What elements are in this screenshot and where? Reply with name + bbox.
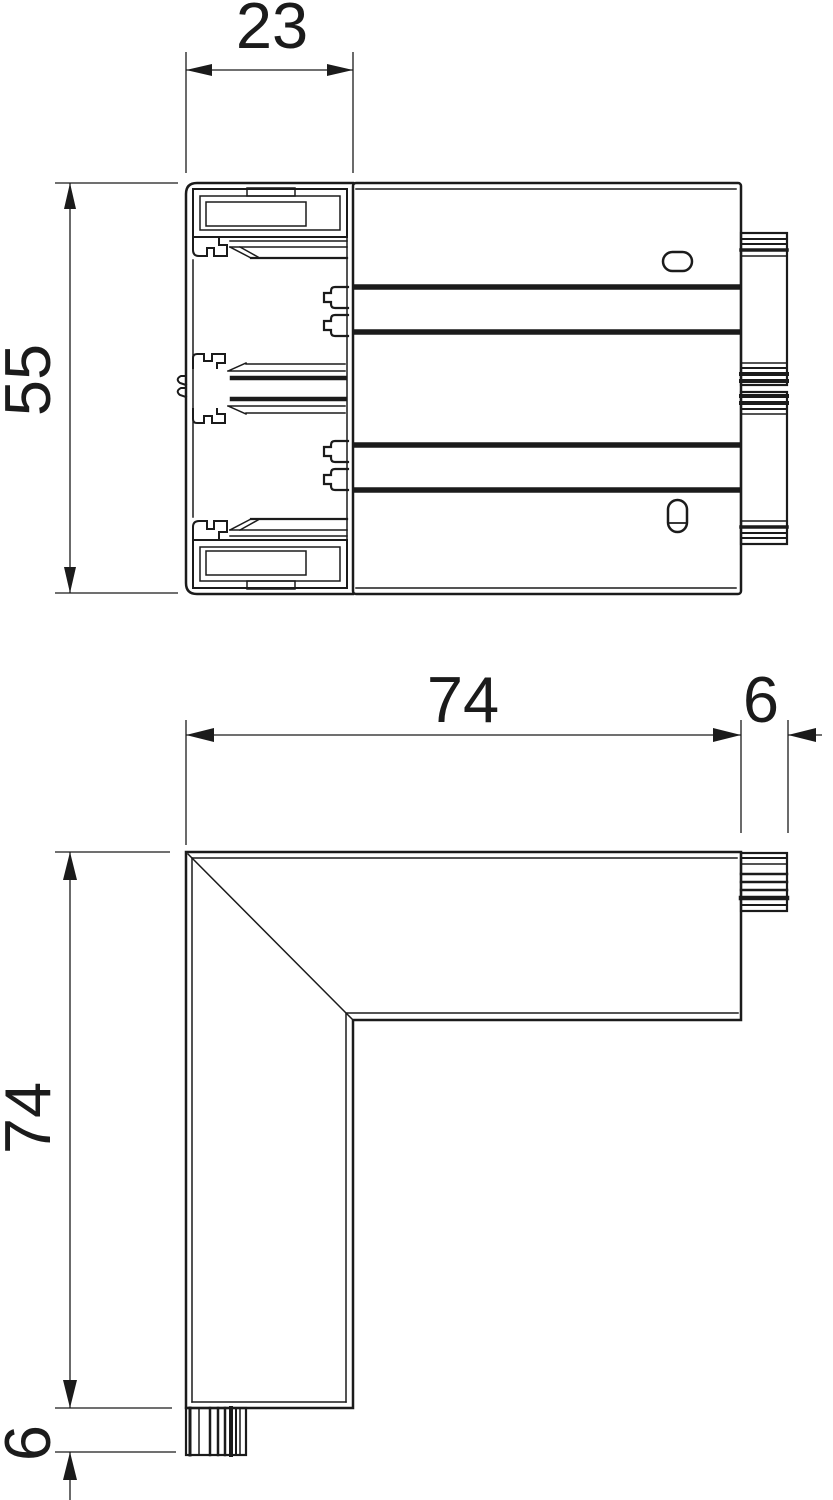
drawing-sheet: 23 55 [0,0,833,1500]
spigot-bottom-ribs-thin [199,1408,240,1455]
profile-half-details [193,188,787,385]
arrow-74h-left [186,728,214,742]
lid-inner [200,196,340,230]
dim-label-74-vertical: 74 [0,1082,64,1154]
spigot-bottom-ribs-mid [210,1408,225,1455]
arrow-74h-right [713,728,741,742]
technical-drawing: 23 55 [0,0,833,1500]
cross-section-view [178,183,787,594]
c-clip-1 [324,287,348,308]
arrow-55-bottom [64,567,76,593]
corner-dimensions [55,720,822,1500]
tab-ribs-top [741,239,787,244]
dim-label-23: 23 [236,0,308,62]
c-clip-2 [324,315,348,336]
arrow-23-left [186,64,212,76]
dim-label-74-horizontal: 74 [427,663,499,736]
shelf-diagonal [230,247,258,258]
profile-half-details-mirrored [193,392,787,589]
cross-section-dimensions [55,52,353,593]
corner-miter-diagonal [188,854,352,1019]
slot-oval-vertical [668,500,687,532]
corner-inner-bottom-arm [346,1013,738,1402]
slot-oval-horizontal [663,252,692,271]
arrow-6h-right [788,728,816,742]
arrow-23-right [327,64,353,76]
corner-view [186,852,787,1455]
lid-inner-detail [206,202,306,226]
dim-label-6-horizontal: 6 [743,663,779,736]
body-outline [353,183,741,594]
dim-label-55: 55 [0,344,64,416]
dim-label-6-vertical: 6 [0,1425,64,1461]
spigot-right-ribs-mid [741,874,787,890]
arrow-55-top [64,183,76,209]
arrow-6v-bottom [63,1452,77,1480]
divider-hook-clip [193,354,225,368]
arrow-74v-bottom [63,1380,77,1408]
tab-ribs-bottom-thick [741,374,787,381]
arrow-74v-top [63,852,77,880]
lid-hook-clip [193,238,227,256]
profile-outer-contour [186,183,353,594]
